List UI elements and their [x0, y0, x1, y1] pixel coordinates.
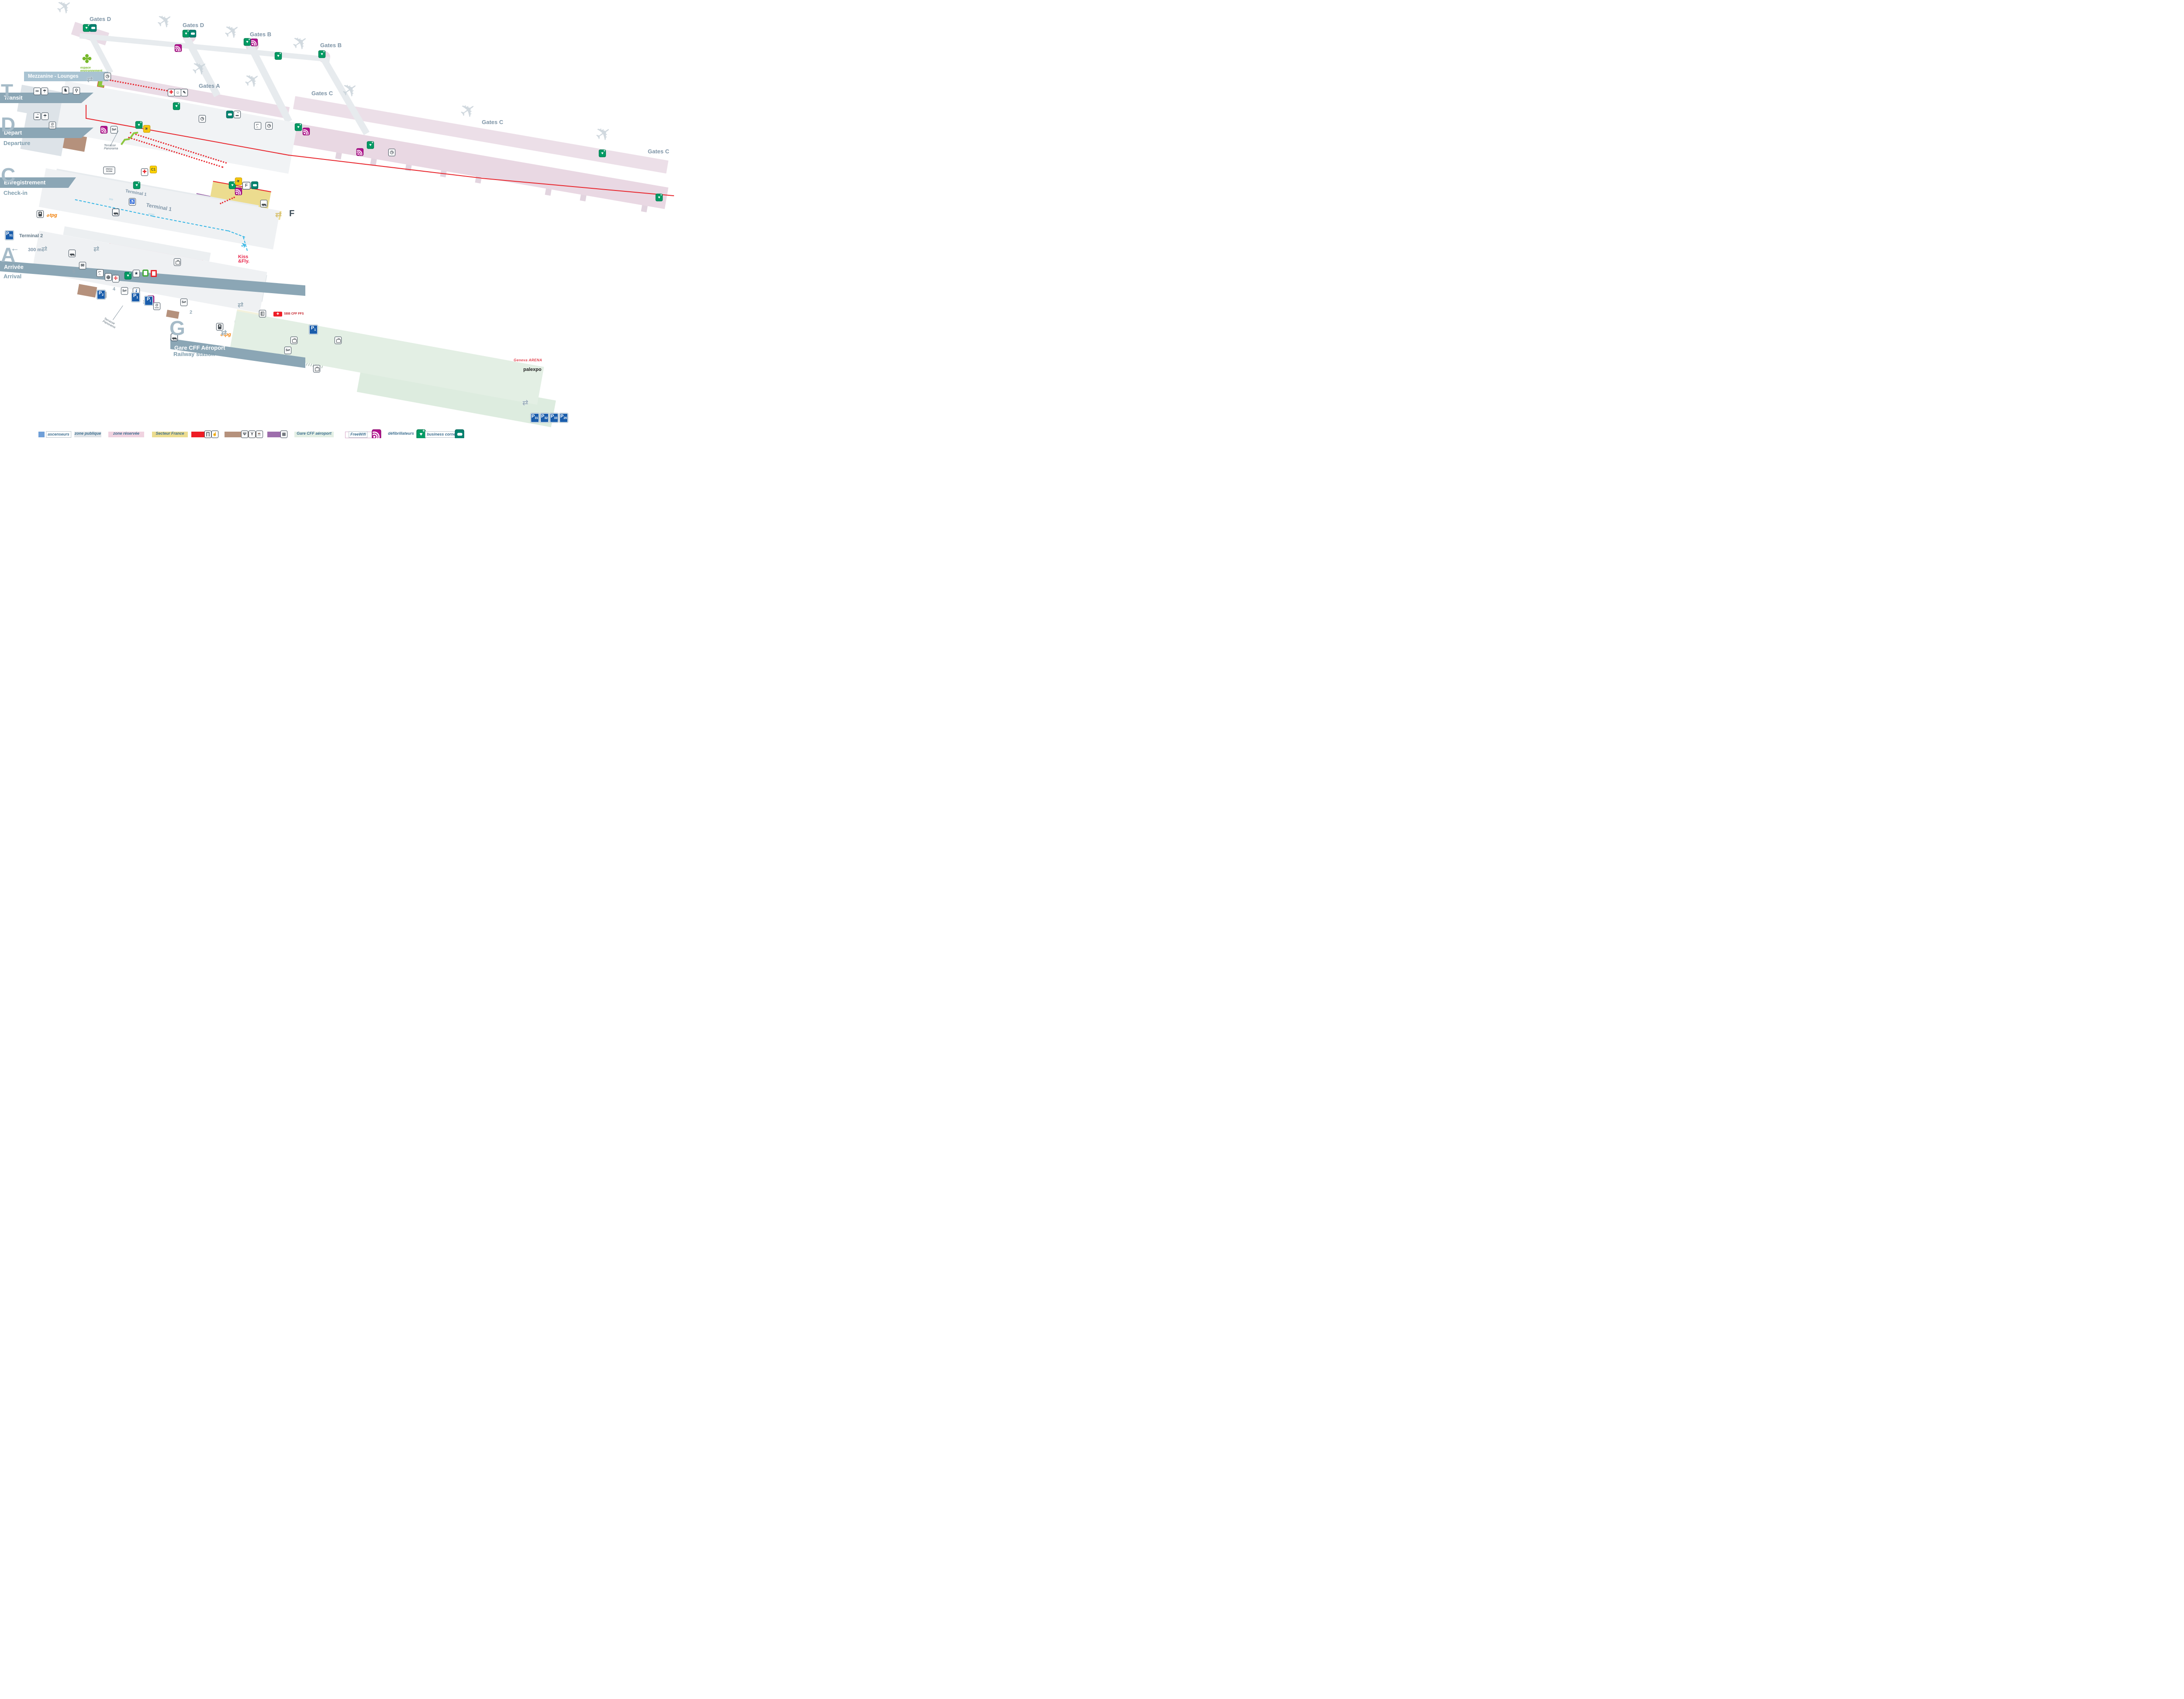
gates-d-label: Gates D: [183, 22, 204, 28]
wheelchair-icon: [129, 199, 135, 205]
parking-number: 1: [136, 296, 138, 301]
vacc-icon: [181, 90, 187, 96]
press-icon: [104, 167, 115, 174]
globe-icon: [105, 274, 111, 280]
sector-f-arrow-icon: ⇄: [275, 210, 282, 219]
walkway-chevrons: ››››››: [148, 211, 155, 217]
police-icon: [133, 270, 139, 277]
rest-icon: [104, 73, 111, 80]
parking-p1-sign: P1: [309, 325, 318, 334]
espace-environnement-label: espace environnement: [80, 66, 102, 73]
door-number: 2: [190, 310, 192, 315]
access-arrow-icon: ⇄: [238, 301, 243, 309]
legend-sub-zone-publique: public area: [83, 438, 99, 438]
mail-icon: [79, 263, 86, 269]
parking-number: i: [150, 300, 151, 305]
wifi-icon: [251, 39, 257, 46]
departure-en-label: Departure: [3, 140, 30, 146]
access-arrow-icon: ⇄: [522, 398, 528, 407]
bc-icon: [90, 25, 96, 31]
defib-icon: [125, 273, 131, 279]
rest-icon: [199, 116, 205, 122]
legend-swatch-ascenseurs: [38, 432, 45, 437]
legend-sub-secteur-france: French sector: [163, 438, 183, 438]
locker-icon: [291, 337, 297, 344]
parking-p33-sign: P33: [550, 413, 558, 422]
train-icon: [259, 311, 266, 317]
locker-icon: [335, 337, 341, 344]
defib-icon: [173, 103, 180, 110]
defib-icon: [599, 150, 605, 157]
terrace-icon: [41, 88, 48, 95]
gates-b-label: Gates B: [320, 42, 342, 48]
defib-icon: [244, 39, 250, 45]
c1-icon: [150, 166, 156, 173]
geneva-arena-logo: Geneva ARENA: [514, 358, 542, 362]
defib-icon: [136, 122, 142, 128]
medical-icon: [142, 169, 148, 176]
legend-label-ascenseurs: ascenseurs: [46, 431, 71, 438]
parking-number: 33: [554, 417, 557, 422]
cred-icon: [151, 270, 157, 277]
sbb-icon: [273, 312, 282, 317]
distance-label: 300 m: [28, 247, 41, 253]
parking-number: 1: [314, 329, 316, 334]
banner-mezzanine-lounges: Mezzanine - Lounges: [24, 72, 108, 81]
airplane-silhouette: ✈: [287, 29, 313, 57]
legend-label-zone-r-serv-e: zone réservée: [113, 431, 139, 436]
defib-icon: [656, 194, 662, 201]
shower-icon: [97, 270, 103, 277]
airplane-silhouette: ✈: [591, 120, 616, 148]
shower-icon: [255, 123, 261, 129]
internet-icon: [49, 122, 55, 129]
legend-sub-d-fibrillateurs: defibrillators: [397, 438, 414, 438]
parking-p31-sign: P31: [531, 413, 539, 422]
locker-icon: [314, 366, 320, 372]
parking-number: 51: [9, 234, 13, 239]
defib-icon: [367, 142, 373, 149]
door-number: 5: [73, 269, 75, 274]
arrival-en-label: Arrival: [3, 273, 21, 280]
checkin-en-label: Check-in: [3, 190, 28, 196]
legend-fork-icon: [242, 431, 248, 438]
defib-icon: [83, 25, 90, 31]
fountain-icon: [73, 88, 79, 94]
meet-icon: [113, 276, 119, 282]
legend-label-secteur-france: Secteur France: [156, 431, 184, 436]
fplate-icon: [243, 183, 250, 189]
parking-number: 31: [535, 417, 538, 422]
legend-gate-icon: [205, 431, 211, 438]
parking-p32-sign: P32: [540, 413, 549, 422]
kiss-and-fly-label: Kiss &Fly.: [238, 255, 249, 264]
access-arrow-icon: ⇄: [41, 245, 47, 253]
gates-b-label: Gates B: [250, 31, 271, 38]
railway-en-label: Railway station: [173, 351, 215, 357]
dep-icon: [235, 178, 242, 185]
palexpo-label: palexpo: [523, 367, 542, 372]
level-letter-g: G: [169, 318, 185, 338]
legend-label-gare-cff-a-roport: Gare CFF aéroport: [297, 431, 332, 436]
parking-number: 2: [102, 294, 104, 299]
legend-sub-zone-r-serv-e: transit: [125, 438, 134, 438]
airplane-silhouette: ✈: [219, 18, 245, 45]
exchange-icon: [181, 299, 187, 306]
rest-icon: [389, 149, 395, 156]
defib-icon: [275, 53, 281, 59]
smoking-icon: [234, 111, 240, 118]
legend-label-business-corner: business corner: [425, 431, 459, 438]
terrasse-panorama-label: Terrasse Panorama: [102, 317, 117, 329]
legend-label-d-fibrillateurs: défibrillateurs: [388, 431, 414, 436]
airplane-silhouette: ✈: [337, 76, 363, 104]
parking-number: 26: [563, 417, 567, 422]
gates-c-label: Gates C: [311, 90, 333, 97]
binoculars-icon: [34, 88, 40, 95]
level-letter-d: D: [1, 114, 15, 135]
legend-officer-icon: [212, 431, 218, 438]
exchange-icon: [121, 288, 128, 294]
legend-defib-icon: [417, 430, 425, 438]
legend-label-freewifi: FreeWifi: [349, 431, 367, 438]
sector-f-label: F: [289, 209, 294, 219]
exchange-icon: [285, 347, 291, 354]
airplane-silhouette: ✈: [52, 0, 77, 21]
parking-p1-sign: P1: [131, 293, 140, 302]
wifi-icon: [175, 45, 181, 52]
internet-icon: [154, 303, 160, 310]
wifi-icon: [303, 128, 309, 135]
legend-coffee-icon: [256, 431, 263, 438]
wifi-icon: [357, 149, 363, 156]
baby-icon: [175, 90, 181, 96]
medical-icon: [168, 90, 174, 96]
parking-p2-sign: P2: [97, 290, 105, 299]
legend-wifi-icon: [373, 430, 380, 438]
airplane-silhouette: ✈: [152, 7, 178, 35]
smoking-icon: [34, 113, 40, 120]
terrace-icon: [42, 113, 48, 120]
gates-c-label: Gates C: [482, 119, 503, 125]
wifi-icon: [101, 127, 107, 133]
tpg-logo: tpg: [46, 213, 57, 218]
cgrn-icon: [142, 270, 149, 277]
legend-sub-ascenseurs: lifts: [59, 438, 63, 438]
defib-icon: [295, 124, 301, 131]
parking-pi-sign: Pi: [145, 296, 153, 305]
legend-cocktail-icon: [249, 431, 255, 438]
gates-c-label: Gates C: [648, 148, 669, 155]
access-arrow-icon: ⇄: [93, 245, 99, 253]
clover-icon: [84, 55, 90, 62]
carrental-icon: [69, 250, 75, 257]
exchange-icon: [111, 127, 117, 133]
airplane-silhouette: ✈: [455, 97, 481, 125]
bc-icon: [252, 182, 258, 189]
legend-label-zone-publique: zone publique: [75, 431, 101, 436]
level-letter-t: T: [1, 81, 13, 101]
dep-icon: [144, 126, 150, 132]
french-boundary: [86, 105, 86, 119]
bus-icon: [37, 211, 43, 218]
legend-passport-icon: [281, 431, 287, 438]
kids-icon: [62, 87, 69, 94]
access-arrow-icon: ⇄: [87, 75, 93, 84]
walkway-chevrons: ››››: [108, 197, 113, 202]
sbb-cff-ffs-label: SBB CFF FFS: [284, 312, 304, 315]
taxi-icon: [113, 209, 119, 216]
level-letter-c: C: [1, 165, 15, 185]
defib-icon: [229, 182, 235, 189]
defib-icon: [134, 182, 140, 189]
terminal-2-label: Terminal 2: [19, 233, 43, 239]
shop-area: [77, 284, 97, 298]
porter-icon: [174, 259, 180, 266]
parking-p26-sign: P26: [560, 413, 568, 422]
carrental-icon: [261, 201, 267, 207]
access-arrow-icon: ⇄: [221, 329, 227, 337]
terrasse-panorama-label: Terrasse Panorama: [104, 144, 118, 150]
bc-icon: [227, 111, 233, 118]
gates-a-label: Gates A: [199, 83, 220, 89]
door-number: 4: [113, 287, 115, 292]
parking-p51-sign: P51: [5, 231, 14, 240]
terrasse-arrow: [113, 305, 123, 320]
bc-icon: [190, 31, 196, 37]
legend-sub-gare-cff-a-roport: Railway station: [307, 438, 329, 438]
geneva-airport-terminal-map: Mezzanine - Lounges Transit Départ Depar…: [0, 0, 676, 438]
wifi-icon: [235, 188, 242, 195]
defib-icon: [183, 31, 189, 37]
defib-icon: [319, 51, 325, 58]
rest-icon: [266, 123, 272, 129]
left-arrow-icon: ←: [10, 244, 19, 254]
legend-bc-icon: [456, 430, 463, 438]
gates-d-label: Gates D: [90, 16, 111, 22]
parking-number: 32: [544, 417, 548, 422]
